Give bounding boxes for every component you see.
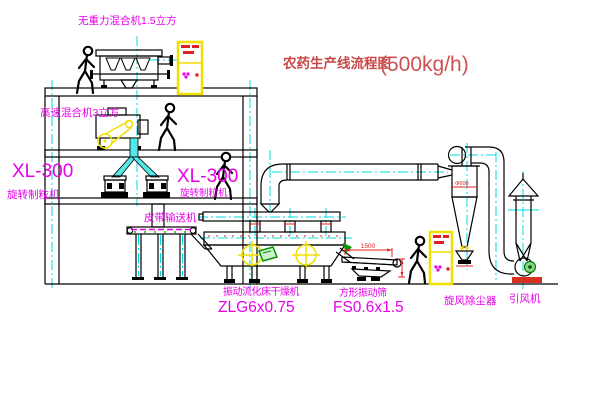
- control-cabinet-right: [430, 232, 452, 284]
- granulator-left-drawing: [101, 176, 128, 198]
- label-belt-conveyor: 皮带输送机: [144, 211, 197, 224]
- person-figure: [409, 237, 426, 283]
- page-title: 农药生产线流程图: [282, 55, 391, 71]
- page-title-capacity: (500kg/h): [380, 53, 469, 76]
- exhaust-duct: [261, 164, 452, 212]
- label-dryer-model: ZLG6x0.75: [218, 299, 295, 316]
- person-figure: [77, 47, 94, 93]
- dim-cyclone-dia: Φ600: [455, 181, 469, 187]
- label-screen-name: 方形振动筛: [339, 286, 387, 299]
- label-granulator-right-model: XL-300: [177, 166, 238, 187]
- label-high-speed-mixer: 高速混合机3立方: [40, 106, 119, 119]
- granulator-right-drawing: [143, 176, 170, 198]
- vibrating-screen-drawing: [342, 248, 405, 281]
- label-fan: 引风机: [509, 292, 541, 305]
- label-cyclone: 旋风除尘器: [444, 294, 497, 307]
- label-granulator-left-model: XL-300: [12, 161, 73, 182]
- label-granulator-left-name: 旋转制粒机: [7, 188, 60, 201]
- label-dryer-name: 振动流化床干燥机: [223, 285, 299, 298]
- label-screen-model: FS0.6x1.5: [333, 299, 404, 316]
- induced-draft-fan-drawing: [512, 258, 542, 283]
- y-chute: [112, 157, 159, 177]
- belt-conveyor-drawing: [127, 227, 212, 280]
- gravity-mixer-drawing: [90, 50, 173, 88]
- control-cabinet-top: [178, 42, 202, 94]
- dim-screen-length: 1500: [361, 243, 376, 250]
- pesticide-line-flow-diagram: 农药生产线流程图 (500kg/h) 无重力混合机1.5立方 高速混合机3立方 …: [0, 0, 600, 403]
- person-figure: [159, 104, 176, 150]
- fluid-bed-dryer-drawing: [199, 212, 354, 283]
- label-granulator-right-name: 旋转制粒机: [180, 187, 228, 199]
- label-gravity-mixer: 无重力混合机1.5立方: [78, 14, 177, 27]
